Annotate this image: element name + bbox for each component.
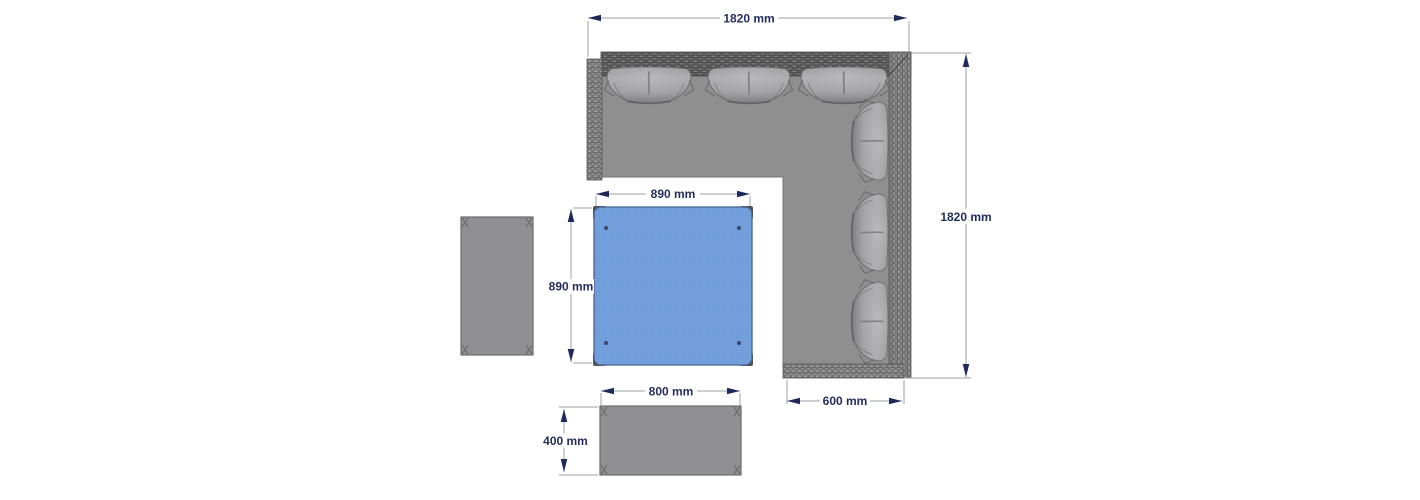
svg-text:400 mm: 400 mm xyxy=(543,434,588,448)
svg-text:890 mm: 890 mm xyxy=(651,187,696,201)
svg-text:1820 mm: 1820 mm xyxy=(940,210,991,224)
svg-text:1820 mm: 1820 mm xyxy=(723,12,774,26)
svg-text:800 mm: 800 mm xyxy=(649,385,694,399)
svg-text:600 mm: 600 mm xyxy=(823,394,868,408)
svg-text:890 mm: 890 mm xyxy=(549,280,594,294)
